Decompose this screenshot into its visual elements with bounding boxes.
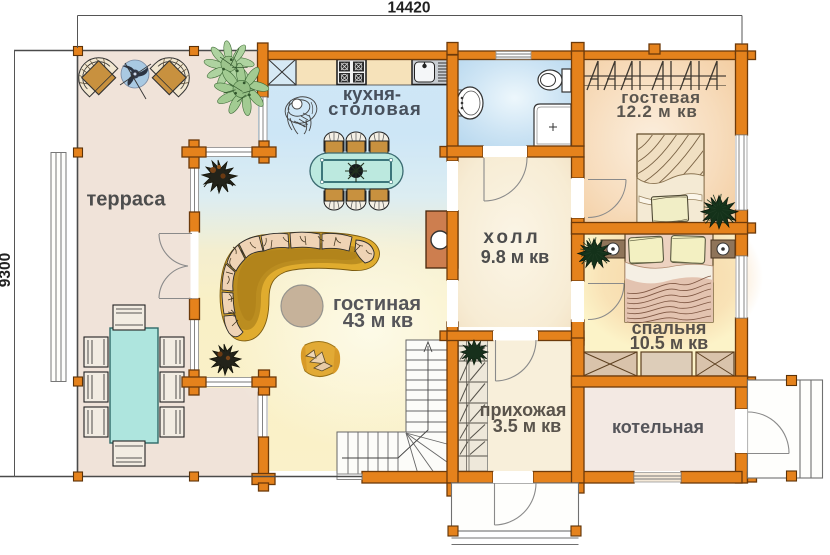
svg-text:9.8 м кв: 9.8 м кв bbox=[481, 247, 549, 267]
svg-text:10.5 м кв: 10.5 м кв bbox=[630, 333, 708, 353]
svg-text:3.5 м кв: 3.5 м кв bbox=[493, 416, 561, 436]
svg-text:14420: 14420 bbox=[387, 0, 430, 17]
svg-text:холл: холл bbox=[483, 227, 540, 248]
svg-text:терраса: терраса bbox=[87, 189, 167, 211]
svg-text:43 м кв: 43 м кв bbox=[343, 310, 413, 332]
svg-text:котельная: котельная bbox=[612, 417, 704, 437]
svg-text:столовая: столовая bbox=[328, 98, 422, 119]
svg-text:9300: 9300 bbox=[0, 253, 14, 287]
svg-text:12.2 м кв: 12.2 м кв bbox=[616, 102, 697, 121]
